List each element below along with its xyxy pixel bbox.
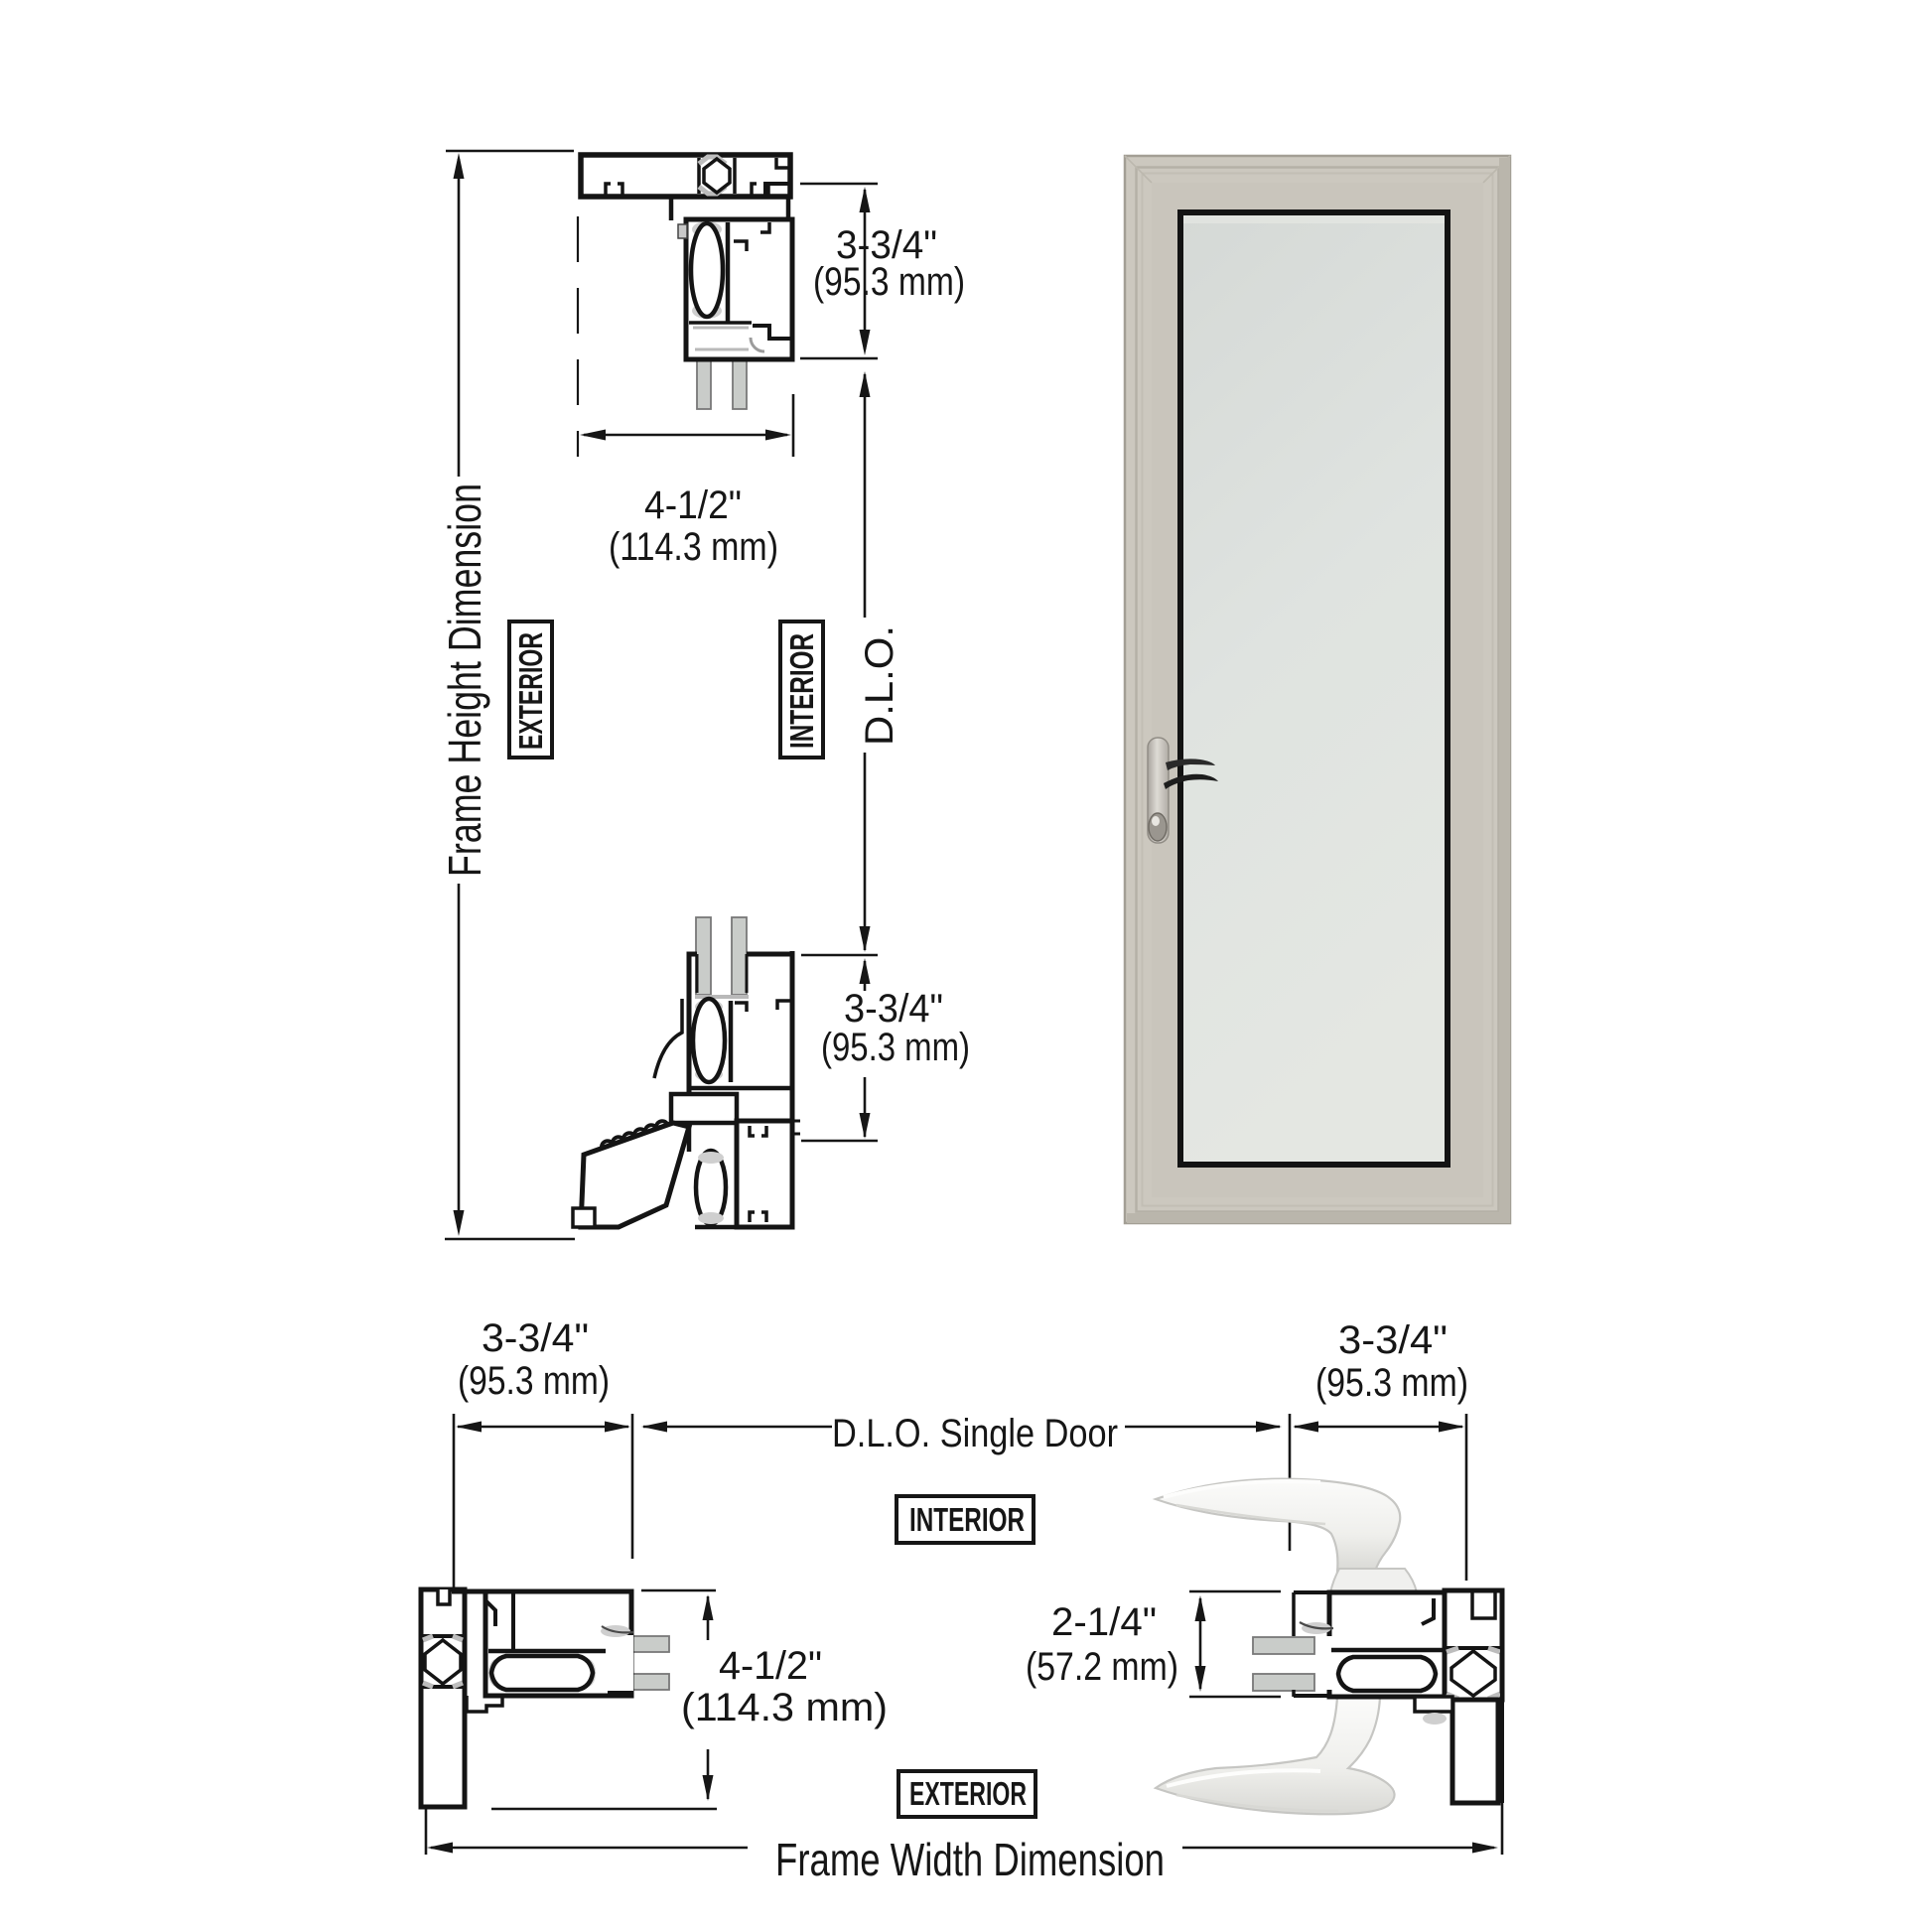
svg-text:(57.2 mm): (57.2 mm) [1026, 1645, 1178, 1689]
svg-text:(114.3 mm): (114.3 mm) [681, 1686, 888, 1729]
svg-text:2-1/4": 2-1/4" [1051, 1600, 1157, 1644]
svg-text:EXTERIOR: EXTERIOR [512, 632, 549, 750]
svg-text:(95.3 mm): (95.3 mm) [821, 1026, 970, 1069]
svg-text:D.L.O.: D.L.O. [858, 625, 901, 746]
svg-text:(114.3 mm): (114.3 mm) [609, 525, 778, 569]
svg-text:Frame Width Dimension: Frame Width Dimension [775, 1834, 1165, 1885]
svg-text:D.L.O. Single Door: D.L.O. Single Door [832, 1412, 1118, 1455]
svg-text:3-3/4": 3-3/4" [482, 1316, 589, 1360]
svg-text:Frame Height Dimension: Frame Height Dimension [439, 483, 490, 877]
svg-text:(95.3 mm): (95.3 mm) [458, 1359, 610, 1403]
svg-text:3-3/4": 3-3/4" [844, 987, 943, 1031]
svg-text:INTERIOR: INTERIOR [909, 1501, 1025, 1538]
svg-text:4-1/2": 4-1/2" [719, 1644, 822, 1688]
svg-text:(95.3 mm): (95.3 mm) [813, 260, 965, 304]
svg-text:4-1/2": 4-1/2" [644, 483, 742, 527]
svg-text:(95.3 mm): (95.3 mm) [1315, 1361, 1468, 1405]
svg-text:3-3/4": 3-3/4" [1338, 1318, 1448, 1362]
svg-text:EXTERIOR: EXTERIOR [909, 1775, 1027, 1812]
svg-text:INTERIOR: INTERIOR [783, 633, 820, 749]
